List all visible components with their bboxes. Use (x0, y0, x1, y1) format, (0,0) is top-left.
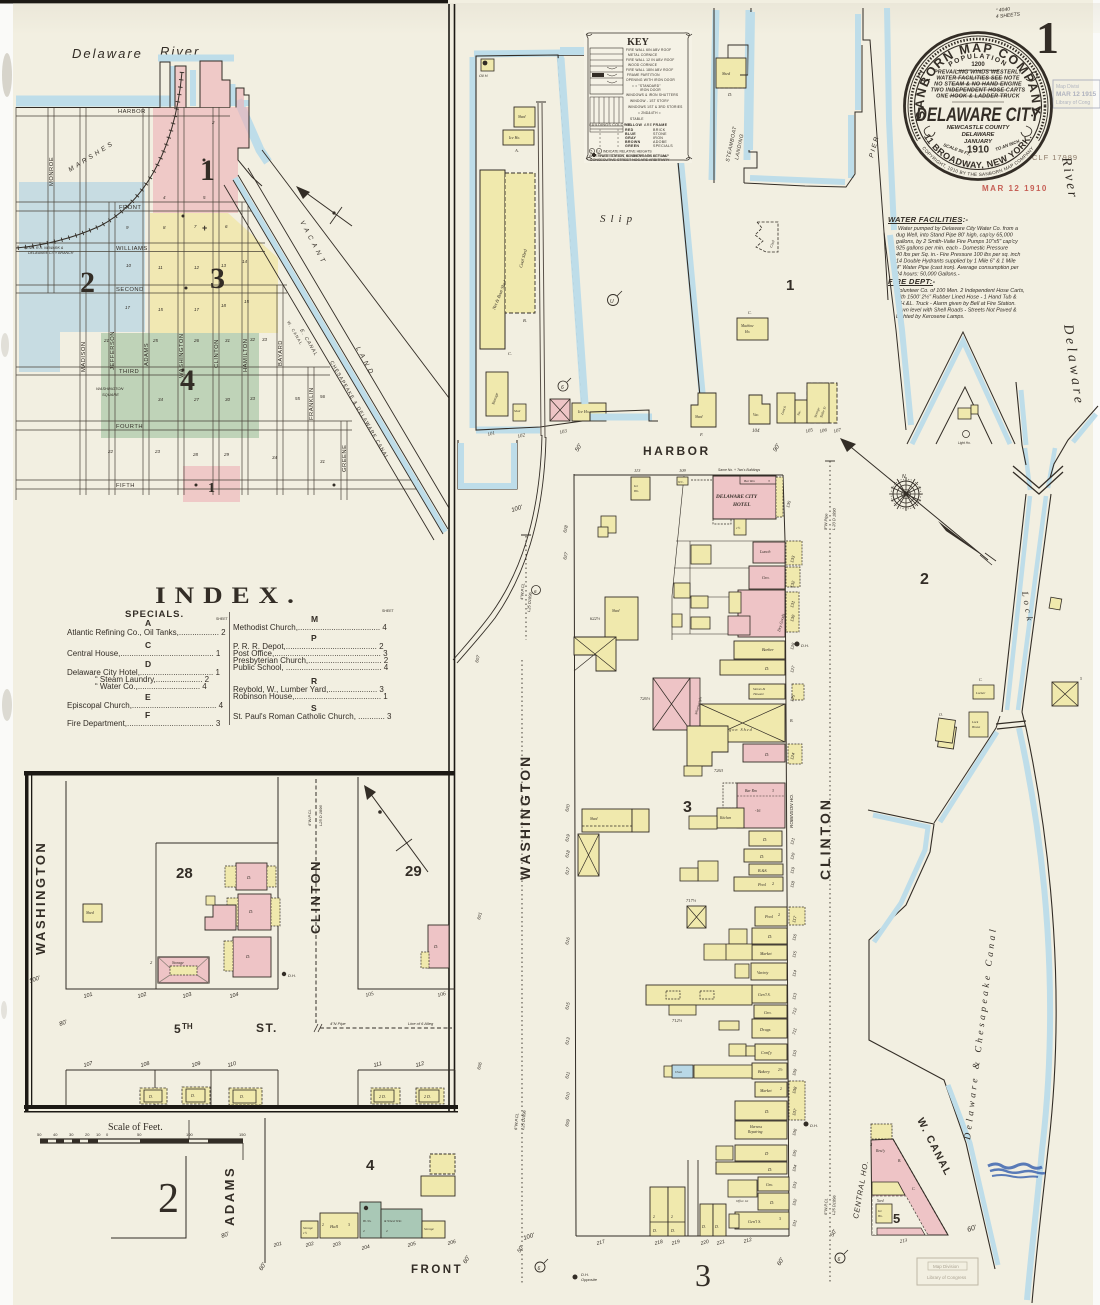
svg-text:Line of 6 Alleg: Line of 6 Alleg (408, 1021, 434, 1026)
svg-text:A: A (145, 618, 151, 628)
svg-text:WATER FACILITIES:-: WATER FACILITIES:- (888, 215, 969, 224)
svg-text:NEWCASTLE COUNTY: NEWCASTLE COUNTY (947, 125, 1011, 131)
svg-text:A.: A. (514, 148, 519, 153)
svg-text:dug Well, into Stand Pipe 80': dug Well, into Stand Pipe 80' high, cap'… (896, 233, 1013, 239)
svg-text:717½: 717½ (686, 898, 697, 903)
svg-text:Map Divisi: Map Divisi (1056, 84, 1079, 90)
svg-text:D.: D. (190, 1093, 195, 1098)
svg-text:Tinware: Tinware (753, 692, 764, 696)
svg-text:FOURTH: FOURTH (116, 424, 143, 430)
svg-text:Oil H.: Oil H. (479, 74, 489, 78)
svg-text:5: 5 (591, 150, 593, 154)
svg-text:Storage: Storage (424, 1227, 435, 1231)
svg-text:gallons, by 2 Smith-Vaile Fire: gallons, by 2 Smith-Vaile Fire Pumps 10"… (896, 239, 1018, 245)
svg-text:Barber: Barber (762, 647, 774, 652)
svg-text:CONSECUTIVE STREET NOS ARE AR: CONSECUTIVE STREET NOS ARE ARBITRARY (590, 158, 670, 162)
svg-text:JEFFERSON: JEFFERSON (110, 331, 116, 370)
svg-text:Variety: Variety (757, 970, 769, 975)
svg-text:2: 2 (653, 1215, 655, 1219)
svg-text:Fire Department,..............: Fire Department,........................… (67, 719, 221, 728)
svg-text:DELAWARE: DELAWARE (962, 132, 996, 138)
svg-text:Episcopal Church,.............: Episcopal Church,.......................… (67, 701, 224, 710)
svg-text:Ice: Ice (633, 484, 639, 488)
svg-text:21: 21 (103, 338, 110, 343)
svg-text:FIFTH: FIFTH (116, 483, 135, 489)
svg-text:WINDOWS 1ST & 3RD STORIES: WINDOWS 1ST & 3RD STORIES (628, 105, 683, 109)
svg-text:D.: D. (769, 1200, 774, 1205)
svg-text:FRONT: FRONT (411, 1264, 463, 1276)
svg-text:2: 2 (211, 120, 215, 125)
svg-text:Hall: Hall (329, 1224, 339, 1229)
svg-text:D.: D. (764, 1109, 769, 1114)
svg-text:3: 3 (779, 1217, 781, 1221)
svg-text:2: 2 (772, 881, 774, 886)
svg-text:29: 29 (223, 452, 230, 457)
svg-text:House: House (971, 725, 981, 729)
svg-text:4"N Pipe: 4"N Pipe (330, 1021, 346, 1026)
svg-text:23: 23 (154, 449, 161, 454)
svg-text:1200: 1200 (971, 62, 985, 68)
svg-text:C.: C. (979, 678, 983, 682)
svg-text:40: 40 (53, 1132, 58, 1137)
svg-text:=: = (617, 144, 619, 148)
svg-text:109: 109 (679, 468, 687, 473)
svg-text:GREEN: GREEN (625, 144, 639, 148)
svg-text:11: 11 (158, 265, 163, 270)
svg-text:D.: D. (762, 837, 767, 842)
svg-text:BAYARD: BAYARD (278, 340, 284, 366)
svg-text:B.: B. (898, 1159, 901, 1163)
svg-text:Market: Market (759, 1088, 772, 1093)
svg-text:F.: F. (699, 432, 703, 437)
svg-text:L 20 D 1890: L 20 D 1890 (831, 507, 837, 530)
svg-text:THIRD: THIRD (119, 369, 139, 375)
svg-text:1: 1 (1036, 12, 1059, 63)
svg-text:Light Ho.: Light Ho. (958, 441, 971, 445)
svg-text:5: 5 (893, 1211, 900, 1226)
svg-text:CLINTON: CLINTON (817, 797, 833, 880)
svg-text:HARBOR: HARBOR (643, 444, 711, 458)
svg-text:40 lbs per Sq. in.- Fire Press: 40 lbs per Sq. in.- Fire Pressure 100 lb… (896, 252, 1020, 258)
svg-text:Robinson House,...............: Robinson House,.........................… (233, 692, 388, 701)
svg-text:1: 1 (208, 481, 215, 496)
svg-text:Pool: Pool (757, 882, 767, 887)
svg-text:MAR 12 1915: MAR 12 1915 (1056, 91, 1096, 98)
svg-text:Shed: Shed (514, 409, 521, 413)
svg-text:SQUARE: SQUARE (102, 392, 119, 397)
svg-text:IRON DOOR: IRON DOOR (640, 88, 661, 92)
svg-text:30: 30 (225, 397, 231, 402)
svg-text:33: 33 (250, 396, 256, 401)
svg-text:DELAWARE CITY BRANCH: DELAWARE CITY BRANCH (28, 251, 74, 255)
svg-text:Shed: Shed (612, 609, 619, 613)
svg-text:Ho.: Ho. (744, 330, 750, 334)
svg-text:Central House,................: Central House,..........................… (67, 649, 221, 658)
svg-text:Pool: Pool (764, 914, 774, 919)
svg-text:925 gallons per min. each - Do: 925 gallons per min. each - Domestic Pre… (896, 246, 1008, 252)
svg-text:WINDOWS & IRON SHUTTERS: WINDOWS & IRON SHUTTERS (626, 93, 679, 97)
svg-text:Conf'y: Conf'y (761, 1050, 772, 1055)
svg-text:METAL CORNICE: METAL CORNICE (628, 53, 658, 57)
svg-text:Slip: Slip (600, 213, 637, 225)
svg-text:Atlantic Refining Co., Oil Ta: Atlantic Refining Co., Oil Tanks,.......… (67, 628, 226, 637)
svg-text:U: U (610, 299, 614, 305)
svg-text:Delaware: Delaware (72, 46, 143, 61)
svg-text:32: 32 (250, 337, 256, 342)
svg-text:Market: Market (759, 951, 772, 956)
svg-text:25: 25 (152, 338, 159, 343)
svg-text:1: 1 (200, 154, 215, 187)
svg-text:D.: D. (764, 666, 769, 671)
svg-text:Machine: Machine (740, 324, 754, 328)
svg-text:ONE HOOK & LADDER TRUCK: ONE HOOK & LADDER TRUCK (936, 94, 1021, 100)
svg-text:3: 3 (683, 799, 692, 816)
svg-text:D.H.: D.H. (801, 643, 809, 648)
svg-text:C.: C. (748, 310, 752, 315)
svg-text:2½: 2½ (778, 1068, 783, 1072)
svg-text:D.: D. (701, 1224, 706, 1229)
svg-text:10: 10 (96, 1132, 101, 1137)
svg-text:+: + (202, 223, 207, 233)
svg-text:MONROE: MONROE (49, 157, 55, 186)
svg-text:12: 12 (194, 265, 200, 270)
svg-text:22: 22 (107, 449, 114, 454)
svg-text:D.: D. (714, 1224, 719, 1229)
svg-text:Lock: Lock (971, 720, 979, 724)
svg-text:FIRE WALL 6IN ABV ROOF: FIRE WALL 6IN ABV ROOF (626, 48, 671, 52)
svg-text:15: 15 (244, 299, 250, 304)
svg-text:Ice: Ice (877, 1209, 882, 1213)
svg-text:5: 5 (174, 1022, 182, 1036)
svg-text:3: 3 (768, 479, 770, 483)
svg-text:10: 10 (126, 263, 132, 268)
svg-text:34: 34 (158, 397, 164, 402)
svg-text:Methodist Church,.............: Methodist Church,.......................… (233, 623, 387, 632)
svg-text:1½: 1½ (303, 1231, 308, 1235)
svg-text:YELLOW: YELLOW (625, 123, 642, 127)
svg-text:Storage: Storage (303, 1226, 314, 1230)
svg-text:L25 D 1896: L25 D 1896 (318, 805, 323, 826)
svg-text:26: 26 (193, 338, 200, 343)
svg-text:Bar Rm: Bar Rm (744, 479, 755, 483)
svg-text:Oven: Oven (675, 1070, 682, 1074)
svg-text:3: 3 (772, 789, 774, 793)
svg-text:1: 1 (786, 277, 794, 294)
svg-text:2: 2 (778, 912, 780, 917)
svg-text:D.: D. (148, 1094, 153, 1099)
svg-text:Shed: Shed (722, 71, 731, 76)
svg-text:Locker: Locker (975, 691, 986, 695)
svg-text:6"W.P.CL: 6"W.P.CL (307, 809, 312, 826)
svg-text:B.: B. (790, 718, 793, 723)
svg-text:18: 18 (221, 303, 227, 308)
svg-text:Vac.: Vac. (753, 413, 759, 417)
svg-text:Volunteer Co. of 100 Men. 2 In: Volunteer Co. of 100 Men. 2 Independent … (896, 288, 1025, 294)
svg-text:31: 31 (320, 459, 326, 464)
svg-text:100: 100 (186, 1132, 193, 1137)
svg-text:13: 13 (221, 263, 227, 268)
svg-text:104: 104 (752, 429, 760, 434)
svg-text:150: 150 (239, 1132, 246, 1137)
svg-text:Office 1st: Office 1st (736, 1199, 748, 1203)
svg-text:2: 2 (920, 571, 929, 588)
svg-text:& Wheel Wkr.: & Wheel Wkr. (384, 1219, 402, 1223)
svg-text:FIRE WALL 12 IN ABV ROOF: FIRE WALL 12 IN ABV ROOF (626, 58, 675, 62)
svg-text:1½: 1½ (736, 526, 741, 530)
svg-text:D.: D. (433, 944, 438, 949)
svg-text:15: 15 (158, 307, 164, 312)
svg-text:Lighted by Kerosene Lamps.: Lighted by Kerosene Lamps. (896, 314, 965, 320)
svg-text:Gro.: Gro. (764, 1010, 772, 1015)
svg-text:KEY: KEY (627, 37, 649, 48)
svg-text:6: 6 (838, 1257, 841, 1263)
svg-text:D.: D. (652, 1228, 657, 1233)
svg-text:N: N (902, 474, 906, 480)
svg-text:Ice Ho.: Ice Ho. (577, 409, 590, 414)
svg-text:726½: 726½ (640, 696, 651, 701)
svg-text:Bar Rm: Bar Rm (745, 789, 757, 793)
svg-text:D.: D. (764, 752, 769, 757)
svg-text:6: 6 (561, 385, 564, 391)
svg-text:14: 14 (242, 259, 248, 264)
svg-text:2: 2 (322, 1223, 324, 1227)
svg-text:St. Paul's Roman Catholic Chur: St. Paul's Roman Catholic Church, ......… (233, 712, 392, 721)
svg-text:17: 17 (194, 307, 200, 312)
svg-text:O.: O. (939, 713, 943, 717)
svg-text:4" Water Pipe (cast iron). Ave: 4" Water Pipe (cast iron). Average consu… (896, 265, 1019, 271)
svg-text:Shed: Shed (590, 817, 597, 821)
svg-text:Scale of Feet.: Scale of Feet. (108, 1122, 163, 1133)
svg-text:Drugs: Drugs (759, 1027, 771, 1032)
svg-text:8"W Pipe: 8"W Pipe (823, 513, 829, 530)
svg-text:Bakery: Bakery (758, 1069, 770, 1074)
svg-text:17: 17 (125, 305, 131, 310)
svg-text:=: = (599, 144, 601, 148)
svg-text:4: 4 (366, 1157, 375, 1174)
svg-text:ST.: ST. (256, 1021, 278, 1035)
svg-text:712½: 712½ (672, 1018, 683, 1023)
svg-text:Shed: Shed (518, 115, 525, 119)
svg-text:MADISON: MADISON (81, 341, 87, 372)
svg-text:6: 6 (538, 1266, 541, 1272)
svg-text:Gro.: Gro. (766, 1182, 773, 1187)
svg-text:14 Double Hydrants supplied by: 14 Double Hydrants supplied by 1 Mile 6"… (896, 259, 1016, 265)
svg-text:Storage: Storage (172, 961, 184, 965)
svg-text:HOTEL: HOTEL (732, 502, 751, 508)
svg-text:HAMILTON: HAMILTON (243, 339, 249, 372)
svg-text:3: 3 (348, 1223, 350, 1227)
svg-text:6"W.P.CL: 6"W.P.CL (823, 1198, 829, 1215)
svg-text:Lunch: Lunch (759, 549, 770, 554)
svg-text:D.: D. (246, 875, 251, 880)
svg-text:29: 29 (405, 863, 422, 880)
svg-text:C.: C. (508, 351, 512, 356)
svg-text:2: 2 (671, 1215, 673, 1219)
svg-text:Harness: Harness (749, 1125, 763, 1129)
svg-text:OPENING WITH IRON DOOR: OPENING WITH IRON DOOR (626, 78, 675, 82)
svg-text:622½: 622½ (590, 616, 601, 621)
svg-text:Bl. Sh.: Bl. Sh. (363, 1219, 372, 1223)
svg-text:Same No. + Two's Buildings: Same No. + Two's Buildings (718, 468, 760, 472)
svg-text:50: 50 (137, 1132, 142, 1137)
svg-text:Ho.: Ho. (633, 489, 639, 493)
svg-text:Ho.: Ho. (877, 1214, 883, 1218)
svg-text:TH: TH (182, 1022, 193, 1031)
svg-text:INDICATE RELATIVE HEIGHTS: INDICATE RELATIVE HEIGHTS (603, 150, 652, 154)
svg-text:113: 113 (634, 468, 641, 473)
svg-text:SHEET: SHEET (382, 609, 395, 613)
svg-text:Map Division: Map Division (933, 1264, 959, 1269)
svg-text:W.C.: W.C. (678, 480, 684, 484)
svg-text:2 D.: 2 D. (379, 1094, 386, 1099)
svg-text:2: 2 (386, 1229, 388, 1233)
svg-text:Kitchen: Kitchen (719, 816, 731, 820)
svg-text:with 1500' 2½" Rubber Lined Ho: with 1500' 2½" Rubber Lined Hose - 1 Han… (896, 294, 1017, 301)
svg-text:30: 30 (69, 1132, 74, 1137)
svg-text:WASHINGTON: WASHINGTON (517, 754, 533, 880)
svg-text:DELAWARE CITY: DELAWARE CITY (916, 105, 1042, 126)
svg-text:5: 5 (1080, 677, 1082, 681)
svg-text:L25 D1896: L25 D1896 (831, 1195, 837, 1216)
svg-text:34: 34 (272, 455, 278, 460)
svg-text:SPECIALS: SPECIALS (653, 144, 673, 148)
svg-text:7263: 7263 (714, 768, 724, 773)
svg-text:1910: 1910 (967, 145, 990, 156)
svg-text:Library of Cong: Library of Cong (1056, 100, 1090, 106)
svg-text:D.: D. (727, 92, 732, 97)
svg-text:Library of Congress: Library of Congress (927, 1275, 967, 1280)
svg-text:50: 50 (37, 1132, 42, 1137)
svg-text:GREENE: GREENE (342, 445, 348, 472)
svg-text:“ Water Co.,.............: “ Water Co.,............................… (95, 682, 207, 691)
svg-text:PENN. R.R. NEWARK &: PENN. R.R. NEWARK & (24, 246, 64, 250)
svg-text:Opposite: Opposite (581, 1277, 598, 1282)
svg-text:WINDOW - 1ST STORY: WINDOW - 1ST STORY (630, 99, 670, 103)
svg-text:D.: D. (670, 1228, 675, 1233)
svg-text:2: 2 (80, 266, 95, 299)
svg-text:Gen'l S.: Gen'l S. (748, 1219, 761, 1224)
svg-text:D.: D. (767, 934, 772, 939)
svg-text:ADAMS: ADAMS (144, 343, 150, 366)
svg-text:D.H.: D.H. (288, 973, 296, 978)
svg-text:33: 33 (262, 337, 268, 342)
svg-text:3: 3 (695, 1257, 711, 1293)
svg-text:FIRE WALL 18IN ABV ROOF: FIRE WALL 18IN ABV ROOF (626, 68, 673, 72)
svg-text:CLINTON: CLINTON (214, 339, 220, 368)
svg-text:D.: D. (245, 954, 250, 959)
svg-text:Public School, ...............: Public School, .........................… (233, 663, 389, 672)
svg-text:SECOND: SECOND (116, 287, 144, 293)
svg-text:Town level with Shell Roads -: Town level with Shell Roads - Streets No… (896, 308, 1017, 314)
svg-text:ARE: ARE (644, 123, 653, 127)
svg-text:2 D.: 2 D. (424, 1094, 431, 1099)
svg-text:MAR 12 1910: MAR 12 1910 (982, 184, 1048, 193)
svg-text:Shed: Shed (695, 415, 702, 419)
svg-text:WASHINGTON: WASHINGTON (33, 841, 48, 955)
svg-text:D.: D. (759, 854, 764, 859)
svg-text:-16: -16 (755, 808, 760, 813)
svg-text:SHEET: SHEET (216, 617, 229, 621)
svg-text:DELAWARE CITY: DELAWARE CITY (715, 494, 758, 500)
svg-text:D.: D. (248, 909, 253, 914)
svg-text:WASHINGTON: WASHINGTON (96, 386, 124, 391)
svg-text:D.: D. (767, 1167, 772, 1172)
svg-text:FRAME: FRAME (653, 123, 668, 127)
svg-text:B.: B. (523, 318, 527, 323)
svg-text:Shed: Shed (86, 910, 95, 915)
svg-text:27: 27 (193, 397, 200, 402)
svg-text:2: 2 (158, 1176, 179, 1222)
svg-text:Rest'y: Rest'y (875, 1149, 885, 1153)
svg-text:20: 20 (85, 1132, 90, 1137)
svg-text:Ice Ho.: Ice Ho. (508, 136, 520, 140)
svg-text:28: 28 (192, 452, 199, 457)
svg-text:2: 2 (780, 1087, 782, 1091)
svg-text:FRONT: FRONT (119, 205, 141, 211)
svg-text:D.H.: D.H. (810, 1123, 818, 1128)
svg-text:2: 2 (363, 1229, 365, 1233)
svg-text:INDEX.: INDEX. (155, 584, 303, 609)
svg-text:Gen'l S.: Gen'l S. (758, 992, 771, 997)
svg-text:B.&S.: B.&S. (758, 868, 768, 873)
svg-text:WOOD CORNICE: WOOD CORNICE (628, 63, 658, 67)
svg-text:= 2ND&4TH =: = 2ND&4TH = (638, 111, 661, 115)
svg-text:28: 28 (176, 865, 193, 882)
svg-text:Repairing: Repairing (747, 1130, 763, 1134)
svg-text:STABLE: STABLE (630, 117, 644, 121)
svg-text:FRAME PARTITION: FRAME PARTITION (627, 73, 660, 77)
svg-text:ROBINSON HO.: ROBINSON HO. (789, 794, 794, 828)
svg-text:D.: D. (239, 1094, 244, 1099)
svg-text:SPECIALS.: SPECIALS. (125, 609, 184, 620)
svg-text:Yard: Yard (877, 1199, 884, 1203)
svg-text:WILLIAMS: WILLIAMS (116, 246, 148, 252)
svg-text:Gro.: Gro. (762, 575, 770, 580)
svg-text:C.: C. (912, 1187, 916, 1191)
svg-text:ADAMS: ADAMS (222, 1166, 237, 1226)
svg-text:Water pumped by Delaware City: Water pumped by Delaware City Water Co. … (898, 226, 1018, 232)
svg-text:31: 31 (225, 338, 231, 343)
svg-text:FRANKLIN: FRANKLIN (309, 387, 315, 420)
svg-text:55: 55 (295, 396, 301, 401)
svg-text:1 H.&L. Truck - Alarm given by: 1 H.&L. Truck - Alarm given by Bell at F… (896, 301, 1016, 307)
svg-text:HARBOR: HARBOR (118, 109, 146, 115)
svg-text:56: 56 (320, 394, 326, 399)
svg-text:Stoves &: Stoves & (753, 687, 766, 691)
